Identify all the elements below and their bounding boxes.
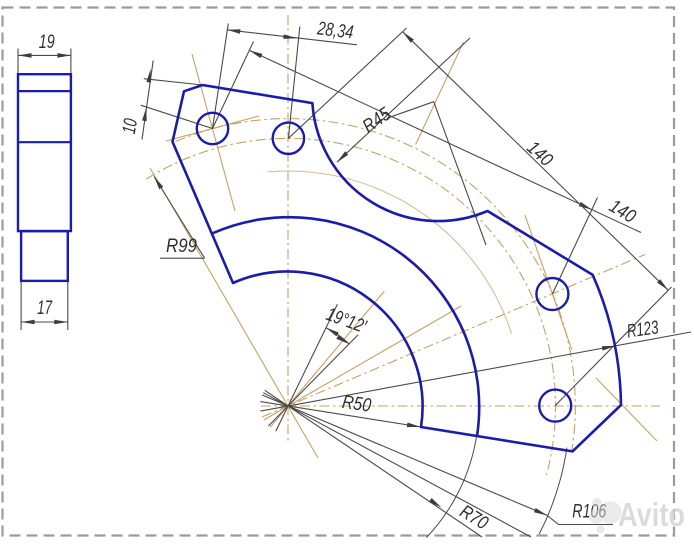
- svg-text:19: 19: [39, 32, 55, 53]
- svg-text:R123: R123: [626, 317, 660, 342]
- svg-text:17: 17: [37, 298, 53, 319]
- svg-text:R50: R50: [341, 392, 373, 417]
- svg-text:Avito: Avito: [618, 496, 685, 533]
- svg-text:28,34: 28,34: [315, 18, 354, 43]
- svg-text:R99: R99: [166, 236, 197, 257]
